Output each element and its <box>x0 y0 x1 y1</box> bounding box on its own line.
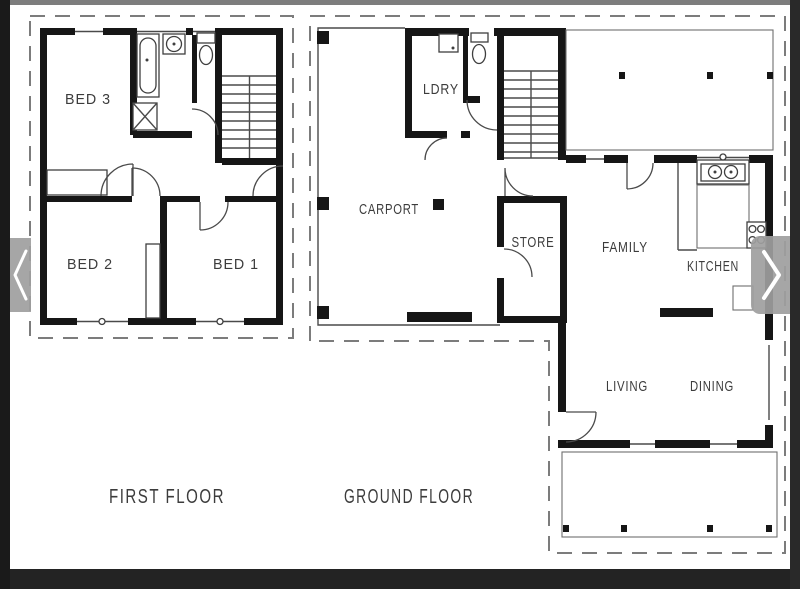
rear-patio <box>566 30 773 150</box>
left-edge-bar <box>0 0 10 589</box>
room-label-carport: CARPORT <box>359 201 419 218</box>
next-image-button[interactable] <box>751 236 790 314</box>
room-label-kitchen: KITCHEN <box>687 258 739 275</box>
room-label-dining: DINING <box>690 378 734 395</box>
ground-floor-stairs <box>504 71 558 158</box>
floorplan-image: BED 3 BED 2 BED 1 FIRST FLOOR <box>0 0 800 589</box>
right-edge-bar <box>790 0 800 589</box>
chevron-left-icon <box>12 247 29 303</box>
chevron-right-icon <box>760 249 782 301</box>
first-floor-title: FIRST FLOOR <box>109 486 225 508</box>
room-label-bed1: BED 1 <box>213 256 259 273</box>
room-label-family: FAMILY <box>602 239 648 256</box>
room-label-living: LIVING <box>606 378 648 395</box>
ground-floor-plan: LDRY CARPORT STORE FAMILY KITCHEN LIVING… <box>310 16 785 553</box>
ground-floor-roofline <box>310 16 785 553</box>
room-label-laundry: LDRY <box>423 81 459 98</box>
top-letterbox-bar <box>10 0 790 5</box>
first-floor-plan: BED 3 BED 2 BED 1 FIRST FLOOR <box>30 16 293 508</box>
carport-columns <box>317 31 444 319</box>
room-label-store: STORE <box>512 234 555 251</box>
first-floor-doors <box>101 109 283 230</box>
bottom-letterbox-bar <box>10 569 790 589</box>
previous-image-button[interactable] <box>10 238 31 312</box>
deck <box>562 452 777 537</box>
image-viewer: BED 3 BED 2 BED 1 FIRST FLOOR <box>0 0 800 589</box>
first-floor-stairs <box>222 76 276 158</box>
room-label-bed3: BED 3 <box>65 91 111 108</box>
ground-floor-title: GROUND FLOOR <box>344 486 474 508</box>
room-label-bed2: BED 2 <box>67 256 113 273</box>
